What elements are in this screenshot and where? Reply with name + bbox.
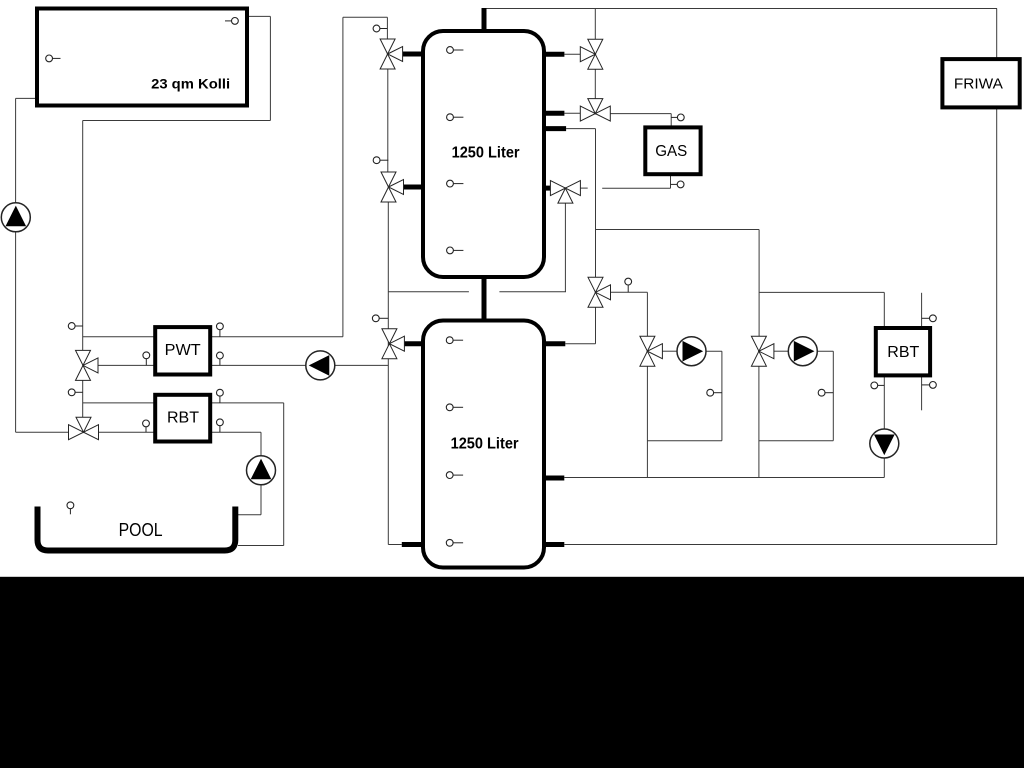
svg-text:RBT: RBT [887, 344, 919, 361]
svg-text:GAS: GAS [655, 143, 687, 160]
svg-text:RBT: RBT [167, 409, 199, 426]
svg-text:PWT: PWT [165, 342, 201, 359]
svg-text:1250 Liter: 1250 Liter [452, 145, 520, 162]
svg-text:FRIWA: FRIWA [954, 76, 1003, 93]
svg-text:23 qm Kolli: 23 qm Kolli [151, 76, 230, 92]
svg-text:POOL: POOL [119, 520, 163, 540]
svg-text:1250 Liter: 1250 Liter [451, 436, 519, 453]
